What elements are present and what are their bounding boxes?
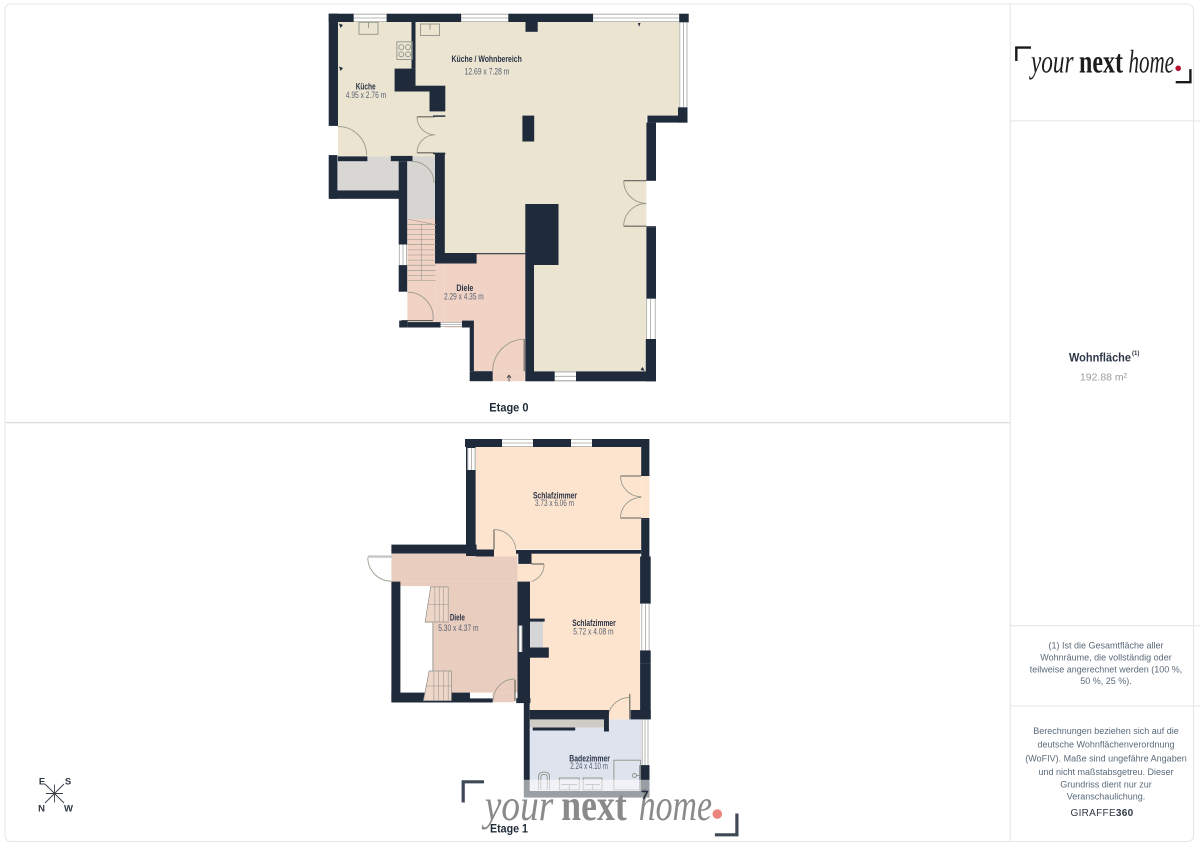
svg-text:next: next [1079,44,1123,80]
svg-text:deutsche Wohnflächenverordnung: deutsche Wohnflächenverordnung [1038,740,1175,750]
svg-text:2.24 x 4.10 m: 2.24 x 4.10 m [570,761,608,771]
svg-text:Etage 0: Etage 0 [489,402,528,414]
svg-text:Berechnungen beziehen sich auf: Berechnungen beziehen sich auf die [1033,726,1179,736]
svg-text:4.95 x 2.76 m: 4.95 x 2.76 m [346,90,387,100]
svg-text:5.30 x 4.37 m: 5.30 x 4.37 m [438,623,478,633]
svg-text:2.29 x 4.35 m: 2.29 x 4.35 m [444,292,484,302]
svg-text:next: next [561,781,627,830]
svg-text:Küche / Wohnbereich: Küche / Wohnbereich [452,54,522,65]
svg-text:your: your [1029,44,1074,80]
svg-text:Veranschaulichung.: Veranschaulichung. [1067,792,1146,802]
svg-text:(1): (1) [1132,351,1139,357]
svg-text:3.73 x 6.06 m: 3.73 x 6.06 m [535,498,574,508]
svg-text:GIRAFFE360: GIRAFFE360 [1070,808,1133,819]
svg-text:W: W [64,804,73,815]
svg-text:12.69 x 7.28 m: 12.69 x 7.28 m [465,66,510,76]
svg-text:teilweise angerechnet werden (: teilweise angerechnet werden (100 %, [1030,664,1183,674]
svg-text:Wohnräume, die vollständig ode: Wohnräume, die vollständig oder [1040,653,1171,663]
svg-text:(1) Ist die Gesamtfläche aller: (1) Ist die Gesamtfläche aller [1048,641,1163,651]
svg-text:192.88 m²: 192.88 m² [1080,372,1127,384]
svg-text:N: N [38,804,45,815]
svg-text:Etage 1: Etage 1 [490,824,529,836]
svg-text:Grundriss dient nur zur: Grundriss dient nur zur [1060,779,1152,789]
svg-text:home: home [639,781,712,830]
svg-text:5.72 x 4.08 m: 5.72 x 4.08 m [573,627,613,637]
svg-text:S: S [65,777,71,788]
svg-text:home: home [1129,44,1175,80]
svg-text:(WoFIV). Maße sind ungefähre A: (WoFIV). Maße sind ungefähre Angaben [1025,753,1186,763]
svg-text:50 %, 25 %).: 50 %, 25 %). [1080,676,1132,686]
svg-text:E: E [39,777,45,788]
svg-text:und nicht maßstabsgetreu. Dies: und nicht maßstabsgetreu. Dieser [1038,767,1173,777]
svg-text:Diele: Diele [450,613,465,624]
svg-text:Wohnfläche: Wohnfläche [1069,353,1131,365]
